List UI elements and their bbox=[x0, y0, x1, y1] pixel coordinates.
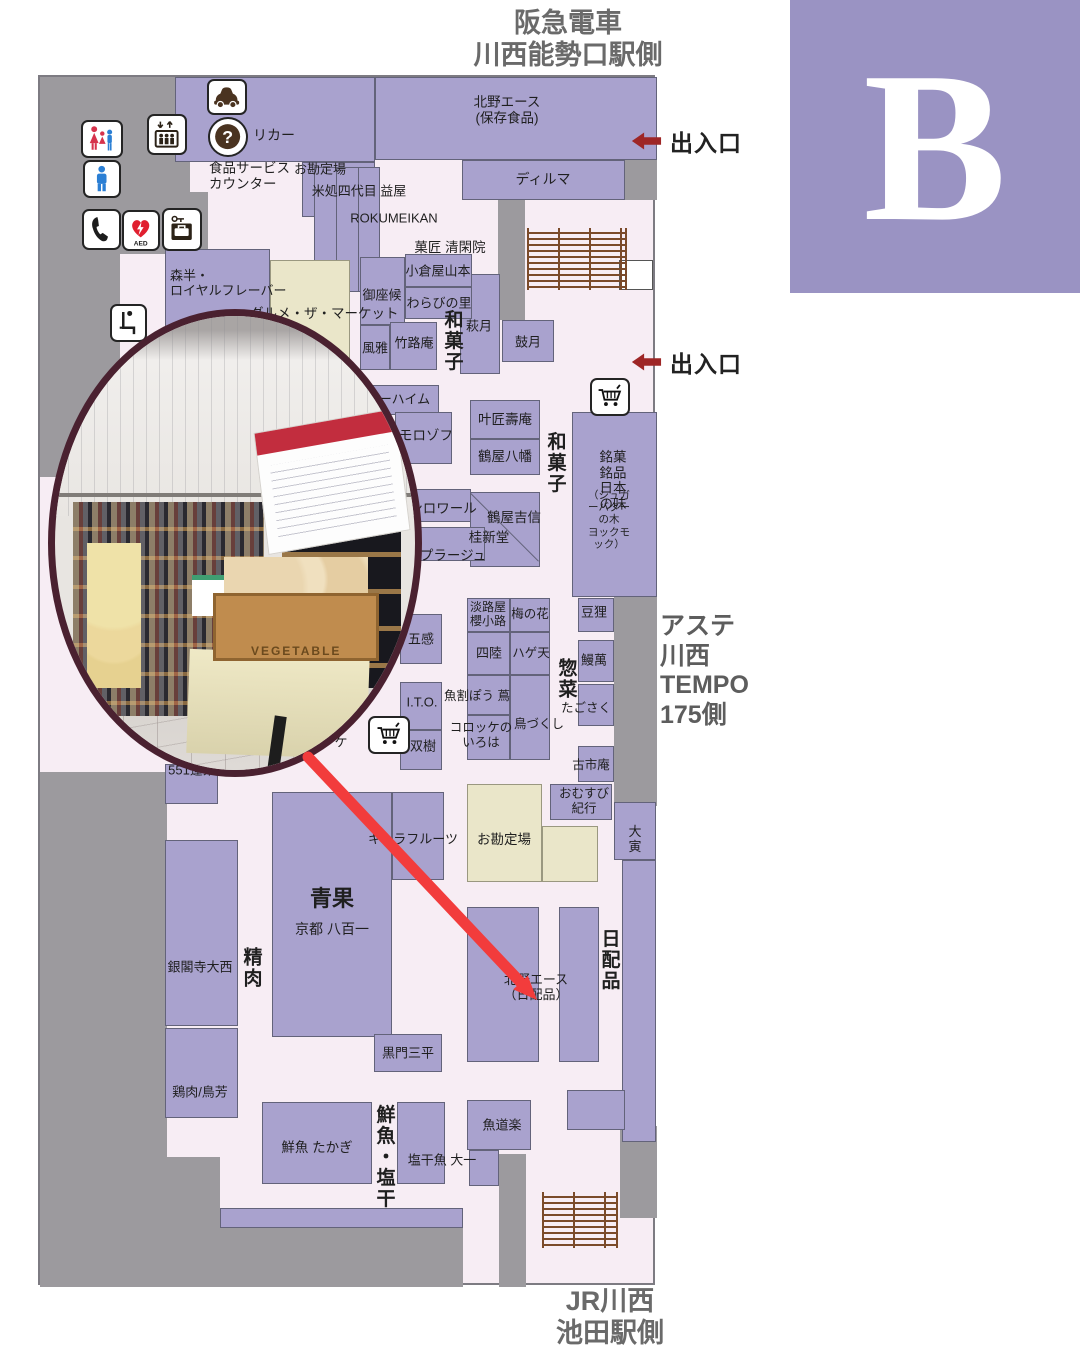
map-label: （シュガーバターの木 ヨックモック） bbox=[587, 490, 631, 551]
wall-area bbox=[40, 772, 167, 1287]
exit-label: 出入口 bbox=[670, 124, 742, 158]
map-label: ハゲ天 bbox=[512, 646, 550, 661]
store-photo-inset: VEGETABLE bbox=[48, 309, 422, 777]
information-icon: ? bbox=[208, 117, 248, 157]
map-label: 淡路屋 櫻小路 bbox=[470, 601, 506, 629]
map-label: 日配品 bbox=[600, 929, 619, 992]
map-label: 鶴屋吉信 bbox=[487, 510, 541, 526]
map-label: 鮮魚 たかぎ bbox=[281, 1140, 352, 1156]
map-label: キムラフルーツ bbox=[368, 831, 458, 846]
cart-icon bbox=[590, 378, 630, 416]
bottom-strip bbox=[220, 1208, 463, 1228]
map-label: リカー bbox=[253, 127, 295, 143]
car-service-icon bbox=[207, 79, 247, 115]
wall-area bbox=[499, 1154, 526, 1287]
wall-area bbox=[220, 1228, 463, 1287]
map-label: 鼓月 bbox=[515, 334, 541, 349]
aste-kawanishi-side-label: アステ 川西 TEMPO 175側 bbox=[660, 612, 749, 730]
wall-area bbox=[614, 592, 657, 806]
map-label: お勘定場 bbox=[294, 161, 346, 176]
map-label: 惣菜 bbox=[557, 658, 576, 700]
map-label: 小倉屋山本 bbox=[405, 263, 470, 278]
map-label: 森半・ ロイヤルフレーバー bbox=[170, 268, 286, 298]
photo-vegetable-crate: VEGETABLE bbox=[213, 593, 379, 661]
map-label: お勘定場 bbox=[477, 832, 531, 848]
map-label: 鮮魚・塩干 bbox=[375, 1105, 394, 1210]
staircase bbox=[542, 1192, 618, 1248]
shop-liquor bbox=[175, 77, 375, 162]
exit-marker: 出入口 bbox=[630, 345, 742, 379]
map-label: 黒門三平 bbox=[382, 1045, 434, 1060]
map-label: ディルマ bbox=[515, 171, 570, 187]
exit-marker: 出入口 bbox=[630, 124, 742, 158]
map-label: 塩干魚 大一 bbox=[408, 1152, 477, 1167]
floor-map-page: 阪急電車 川西能勢口駅側 B リカー北野エース (保存食品)食品サービス カウン… bbox=[0, 0, 1080, 1350]
map-label: 鶴屋八幡 bbox=[478, 449, 532, 465]
map-label: 銀閣寺大西 bbox=[167, 959, 232, 974]
map-label: 鶏肉/鳥芳 bbox=[172, 1084, 228, 1099]
shop-toriyoshi bbox=[165, 1028, 238, 1118]
map-label: 菓匠 清閑院 bbox=[414, 240, 485, 256]
shop-corner bbox=[567, 1090, 625, 1130]
map-label: 四陸 bbox=[476, 645, 502, 660]
svg-text:AED: AED bbox=[134, 241, 148, 247]
map-label: 精肉 bbox=[242, 947, 261, 989]
map-label: 食品サービス カウンター bbox=[209, 160, 290, 191]
restroom-women-icon bbox=[81, 120, 123, 158]
map-label: 北野エース （日配品） bbox=[503, 972, 568, 1002]
shop-daiichi bbox=[397, 1102, 445, 1184]
photo-snack-packets bbox=[87, 543, 141, 688]
map-label: 京都 八百一 bbox=[295, 921, 369, 937]
exit-arrow-icon bbox=[630, 351, 662, 373]
wall-area bbox=[498, 197, 525, 320]
checkout-counter-bottom-2 bbox=[542, 826, 598, 882]
map-label: 古市庵 bbox=[572, 758, 610, 773]
staircase bbox=[527, 228, 627, 290]
map-label: 青果 bbox=[310, 886, 354, 912]
map-label: 鰻萬 bbox=[581, 652, 607, 667]
map-label: 和菓子 bbox=[546, 432, 565, 495]
wall-area bbox=[167, 1157, 220, 1287]
exit-label: 出入口 bbox=[670, 345, 742, 379]
map-label: わらびの里 bbox=[406, 295, 471, 310]
map-label: ROKUMEIKAN bbox=[350, 210, 437, 225]
map-label: 梅の花 bbox=[511, 607, 549, 622]
map-label: おむすび 紀行 bbox=[559, 787, 609, 816]
hankyu-station-side-label: 阪急電車 川西能勢口駅側 bbox=[474, 8, 663, 72]
jr-station-side-label: JR川西 池田駅側 bbox=[556, 1286, 664, 1350]
map-label: 御座候 bbox=[362, 287, 401, 302]
map-label: コロッケの いろは bbox=[450, 721, 513, 750]
section-b-letter: B bbox=[863, 39, 1006, 254]
crate-label: VEGETABLE bbox=[251, 644, 341, 658]
map-label: 北野エース (保存食品) bbox=[474, 94, 541, 125]
shop-ginkakuji-onishi bbox=[165, 840, 238, 1026]
public-phone-icon bbox=[82, 209, 121, 250]
aed-icon: AED bbox=[122, 210, 160, 251]
restroom-men-icon bbox=[83, 160, 121, 198]
map-label: 魚道楽 bbox=[482, 1117, 521, 1132]
section-b-badge: B bbox=[790, 0, 1080, 293]
map-label: 萩月 bbox=[466, 318, 492, 333]
map-label: 和菓子 bbox=[443, 310, 462, 373]
photo-calendar-sign bbox=[254, 408, 411, 555]
wall-area bbox=[625, 154, 657, 200]
map-label: 豆狸 bbox=[581, 604, 607, 619]
coin-locker-icon bbox=[162, 208, 202, 251]
map-label: プラージュ bbox=[420, 548, 486, 564]
map-label: 大寅 bbox=[626, 824, 644, 854]
map-label: 叶匠壽庵 bbox=[478, 412, 532, 428]
map-label: たごさく bbox=[561, 701, 611, 716]
shop-right-strip bbox=[622, 860, 656, 1142]
svg-text:?: ? bbox=[223, 127, 234, 147]
map-label: 鳥づくし bbox=[514, 717, 564, 732]
elevator-icon bbox=[147, 114, 187, 155]
map-label: 桂新堂 bbox=[469, 530, 510, 546]
map-label: 魚割ぽう 蔦 bbox=[444, 689, 510, 704]
shop-seika-yaoichi bbox=[272, 792, 392, 1037]
exit-arrow-icon bbox=[630, 130, 662, 152]
map-label: 米処四代目 益屋 bbox=[312, 183, 407, 198]
